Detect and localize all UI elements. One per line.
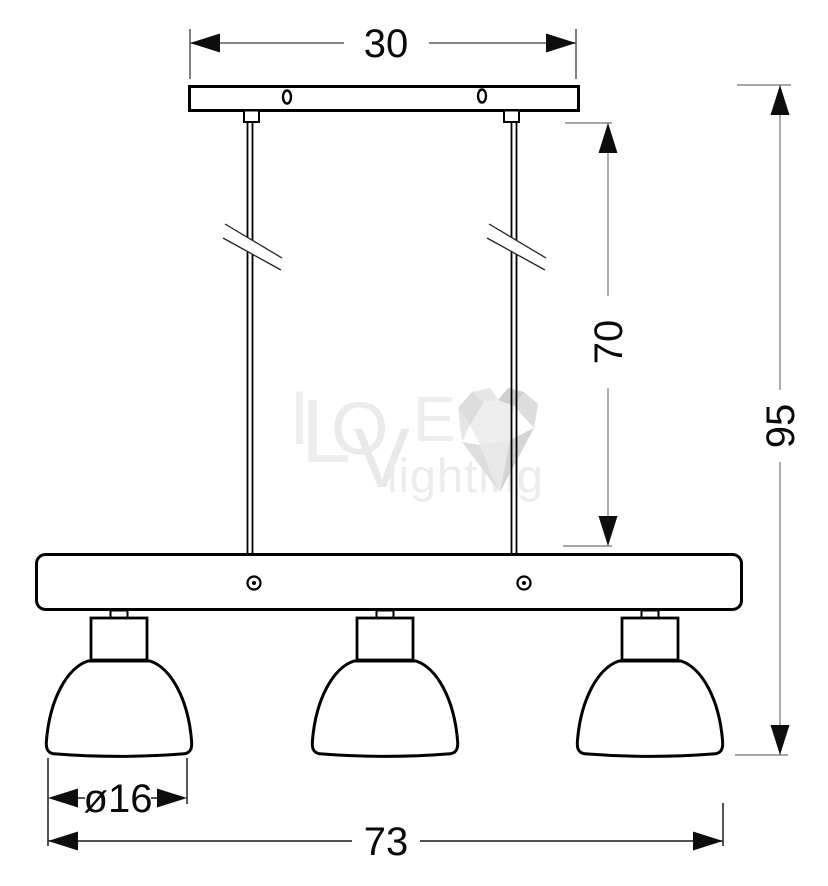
arrowhead-right (157, 789, 187, 808)
ceiling-plate (190, 87, 579, 123)
dimension-label-95: 95 (759, 404, 803, 449)
arrowhead-left (190, 34, 220, 53)
dimension-label-73: 73 (364, 820, 409, 864)
plate-screw-slot-left (283, 91, 291, 104)
drawing-sheet: I L O V E lighting (0, 0, 828, 886)
dimension-label-70: 70 (587, 320, 631, 365)
lamp-unit-1 (46, 611, 191, 757)
dimension-canopy-width: 30 (190, 22, 576, 79)
arrowhead-left (48, 789, 78, 808)
rod-connector-left (244, 111, 259, 123)
hanging-rod-right (512, 122, 517, 553)
arrowhead-down (771, 725, 790, 755)
arrowhead-right (693, 832, 723, 851)
arrowhead-down (599, 516, 618, 546)
mounting-bar (37, 555, 742, 610)
dimension-total-height: 95 (735, 85, 803, 755)
technical-drawing: 30 70 95 (0, 0, 828, 886)
dimension-shade-diameter: ø16 (48, 758, 187, 846)
rod-connector-right (504, 111, 519, 123)
lamp-shade (312, 661, 457, 756)
dimension-rod-length: 70 (563, 123, 631, 546)
arrowhead-left (48, 832, 78, 851)
lamp-shade (46, 661, 191, 756)
lamp-unit-3 (577, 611, 722, 757)
bar-body (37, 555, 742, 610)
arrowhead-up (599, 123, 618, 153)
lamp-holder (357, 618, 413, 660)
lamp-holder (622, 618, 678, 660)
bar-screw-right (518, 577, 531, 590)
dimension-label-30: 30 (364, 22, 409, 66)
lamp-holder (91, 618, 147, 660)
plate-screw-slot-right (478, 90, 486, 103)
bar-screw-left (248, 577, 261, 590)
dimension-label-d16: ø16 (84, 777, 153, 821)
lamp-shade (577, 661, 722, 756)
arrowhead-up (771, 85, 790, 115)
hanging-rod-left (248, 122, 253, 553)
lamp-unit-2 (312, 611, 457, 757)
arrowhead-right (546, 34, 576, 53)
